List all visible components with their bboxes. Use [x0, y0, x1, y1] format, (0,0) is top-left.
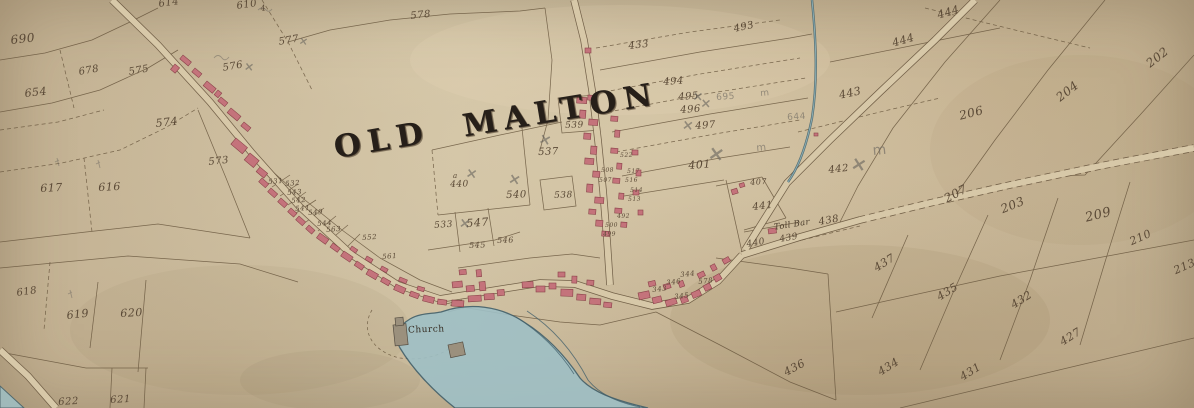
map-drawing [0, 0, 1194, 408]
church-label: Church [408, 324, 445, 335]
paper-stains [70, 5, 1194, 408]
mill-building [448, 342, 465, 358]
historic-map-canvas[interactable]: 6906546785755746176166186196206226216146… [0, 0, 1194, 408]
